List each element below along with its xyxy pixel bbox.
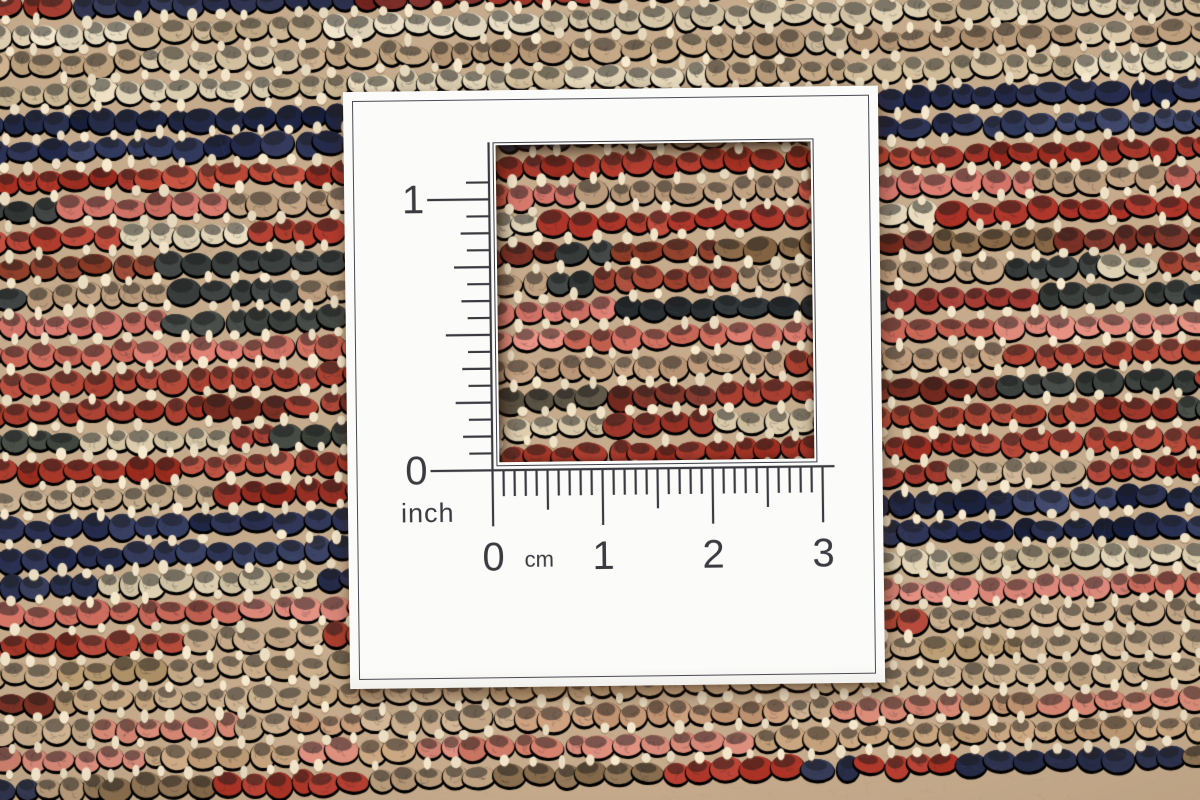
measuring-card: 1 0 inch 0 cm 1 2 3 xyxy=(343,86,885,689)
cm-scale-label-2: 2 xyxy=(683,534,743,575)
inch-unit-label: inch xyxy=(401,500,455,528)
inch-scale-label-1: 1 xyxy=(344,180,424,221)
ruler-tick-marks xyxy=(343,86,885,692)
cm-scale-label-0: 0 xyxy=(463,537,523,578)
cm-unit-label: cm xyxy=(524,549,554,571)
cm-scale-label-1: 1 xyxy=(573,536,633,577)
cm-scale-label-3: 3 xyxy=(793,533,853,574)
carpet-photo-scene: 1 0 inch 0 cm 1 2 3 xyxy=(0,0,1200,800)
inch-scale-label-0: 0 xyxy=(347,451,427,492)
